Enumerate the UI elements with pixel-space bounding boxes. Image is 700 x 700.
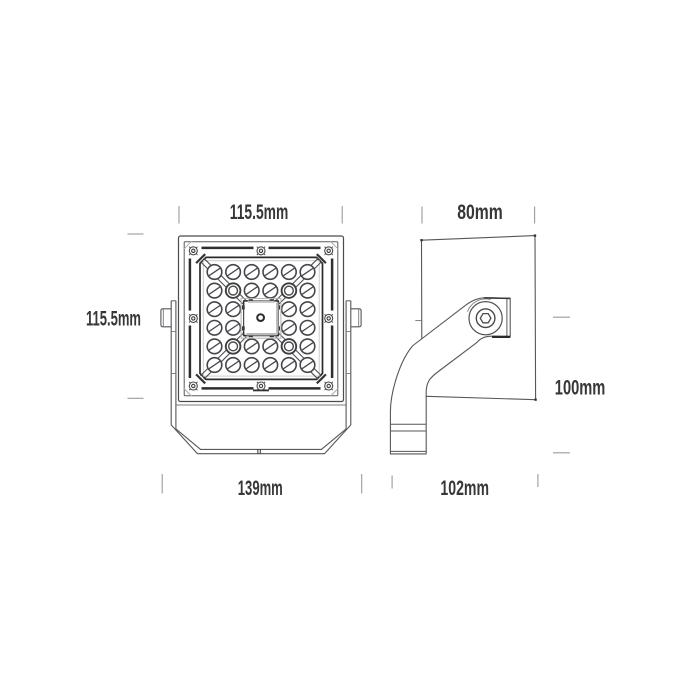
svg-text:80mm: 80mm — [457, 201, 503, 224]
svg-text:139mm: 139mm — [238, 477, 283, 500]
svg-text:102mm: 102mm — [440, 477, 489, 500]
svg-text:115.5mm: 115.5mm — [86, 307, 141, 330]
svg-text:100mm: 100mm — [555, 376, 606, 399]
svg-text:115.5mm: 115.5mm — [230, 201, 289, 224]
